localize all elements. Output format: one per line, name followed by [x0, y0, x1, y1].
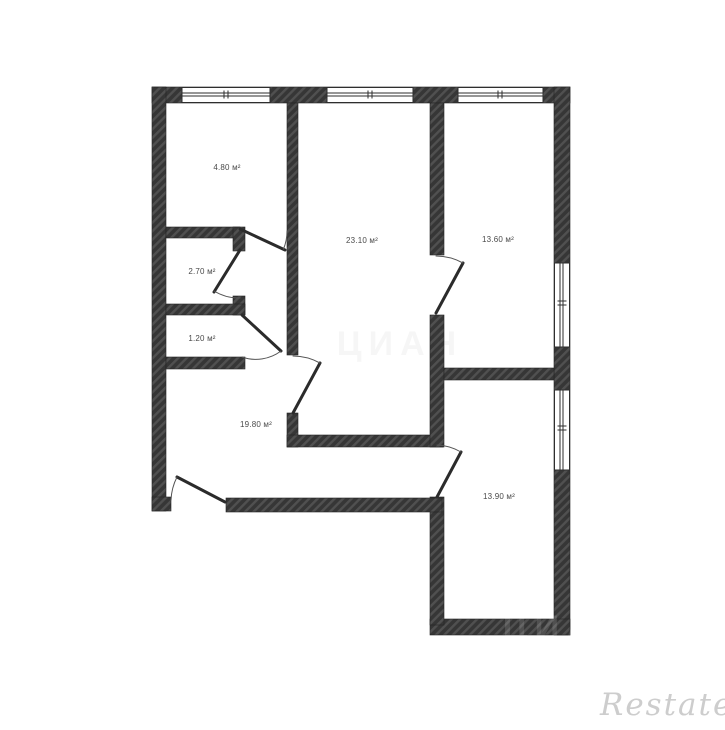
wall-exterior-left [152, 87, 166, 511]
window-top-left [182, 88, 270, 103]
door-room-bottom-right [437, 445, 461, 497]
wall-entrance-corner-stub [152, 497, 171, 511]
door-room-top-left [240, 229, 287, 250]
wall-closet-lower-bottom [166, 357, 245, 369]
room-area-label-top-right: 13.60 м² [482, 235, 514, 244]
room-area-label-hallway: 19.80 м² [240, 420, 272, 429]
wall-room-center-bottom [287, 435, 443, 447]
window-top-center [327, 88, 413, 103]
watermark-cian-center: ЦИАН [337, 325, 463, 363]
wall-exterior-right [554, 87, 570, 635]
room-area-label-closet-lower: 1.20 м² [188, 334, 215, 343]
watermark-restate: Restate [599, 687, 725, 723]
wall-room-top-left-bottom [166, 227, 240, 238]
watermark-cian-bottom: ЦИАН [503, 609, 629, 647]
wall-center-right-upper [430, 103, 444, 255]
door-closet-lower [242, 315, 281, 359]
room-area-label-top-left: 4.80 м² [213, 163, 240, 172]
windows [182, 88, 570, 471]
window-right-upper [555, 263, 570, 347]
door-entrance [171, 477, 225, 502]
room-area-label-center: 23.10 м² [346, 236, 378, 245]
window-top-right [458, 88, 543, 103]
wall-closets-divider [166, 304, 245, 315]
wall-right-rooms-divider [444, 368, 554, 380]
floor-plan-image: 4.80 м² 23.10 м² 13.60 м² 2.70 м² 1.20 м… [0, 0, 725, 725]
wall-hallway-bottom [226, 498, 442, 512]
wall-center-left-upper [287, 103, 298, 355]
floor-plan-svg: 4.80 м² 23.10 м² 13.60 м² 2.70 м² 1.20 м… [0, 0, 725, 725]
room-area-label-bottom-right: 13.90 м² [483, 492, 515, 501]
door-room-center [293, 356, 320, 413]
door-closet-upper [214, 250, 240, 298]
room-area-label-closet-upper: 2.70 м² [188, 267, 215, 276]
wall-room-bottom-right-left [430, 497, 444, 625]
watermarks: ЦИАН ЦИАН Restate [337, 325, 725, 723]
door-room-top-right [436, 256, 463, 313]
window-right-lower [555, 390, 570, 470]
